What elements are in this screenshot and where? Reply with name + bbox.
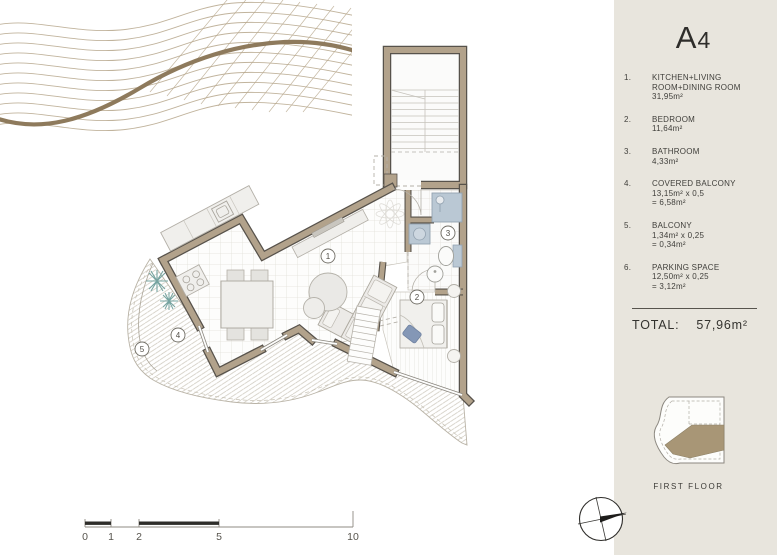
sofa	[318, 263, 397, 349]
dining-table	[221, 270, 273, 340]
room-label-balcony: 5	[140, 345, 145, 354]
washbasin	[427, 266, 443, 282]
room-label-bathroom: 3	[446, 229, 451, 238]
bedroom-sliding-door	[379, 315, 406, 326]
dining-chair	[227, 270, 244, 282]
legend-text: KITCHEN+LIVING ROOM+DINING ROOM 31,95m²	[652, 73, 777, 102]
tv-console	[291, 207, 369, 258]
legend-number: 6.	[624, 263, 652, 292]
balcony-divider-line	[139, 263, 157, 371]
entry-door-swing	[393, 189, 421, 215]
bathroom-fixtures	[409, 193, 462, 282]
scale-tick-0: 0	[82, 531, 88, 543]
bed	[400, 300, 447, 348]
pillow	[432, 325, 444, 344]
toilet-tank	[453, 245, 462, 267]
interior-stairs	[347, 306, 380, 365]
nightstand	[448, 350, 461, 363]
legend-number: 4.	[624, 179, 652, 208]
side-table	[304, 298, 325, 319]
plant-icon	[160, 292, 178, 310]
unit-number: 4	[697, 27, 711, 53]
shower	[432, 193, 462, 222]
dining-chair	[227, 328, 244, 340]
bathroom-floor	[408, 190, 463, 290]
legend-item-kitchen: 1. KITCHEN+LIVING ROOM+DINING ROOM 31,95…	[624, 73, 777, 102]
living-room-floor	[168, 190, 407, 372]
toilet	[439, 247, 454, 266]
scale-tick-5: 5	[216, 531, 222, 543]
legend-number: 3.	[624, 147, 652, 166]
legend-text: BEDROOM 11,64m²	[652, 115, 777, 134]
legend-number: 5.	[624, 221, 652, 250]
kitchen-sink-icon	[212, 201, 234, 222]
terrace-covered-balcony	[128, 259, 467, 445]
room-legend: 1. KITCHEN+LIVING ROOM+DINING ROOM 31,95…	[624, 73, 777, 292]
legend-text: PARKING SPACE 12,50m² x 0,25 = 3,12m²	[652, 263, 777, 292]
legend-number: 2.	[624, 115, 652, 134]
tv-icon	[312, 217, 344, 237]
total-divider	[632, 308, 757, 309]
keyplan-caption: FIRST FLOOR	[624, 482, 753, 491]
wall-stub	[384, 174, 397, 187]
interior-walls	[376, 190, 463, 331]
terrace-edge-dashed	[132, 263, 464, 440]
keyplan: FIRST FLOOR	[624, 392, 753, 491]
room-label-bedroom: 2	[415, 293, 420, 302]
legend-item-covered-balcony: 4. COVERED BALCONY 13,15m² x 0,5 = 6,58m…	[624, 179, 777, 208]
room-label-living: 1	[326, 252, 331, 261]
total-row: TOTAL: 57,96m²	[632, 318, 777, 332]
washing-machine	[409, 224, 430, 244]
legend-number: 1.	[624, 73, 652, 102]
pillow	[432, 303, 444, 322]
dining-chair	[251, 270, 268, 282]
unit-letter: A	[676, 20, 698, 55]
stairwell	[374, 50, 463, 190]
legend-text: BATHROOM 4,33m²	[652, 147, 777, 166]
room-number-labels: 1 2 3 4 5	[135, 226, 455, 356]
total-value: 57,96m²	[696, 318, 747, 332]
dining-chair	[251, 328, 268, 340]
stove-icon	[176, 265, 209, 297]
legend-item-parking: 6. PARKING SPACE 12,50m² x 0,25 = 3,12m²	[624, 263, 777, 292]
scale-tick-2: 2	[136, 531, 142, 543]
contour-lines-decoration	[0, 0, 385, 131]
thick-contour-line	[0, 42, 358, 125]
legend-item-bathroom: 3. BATHROOM 4,33m²	[624, 147, 777, 166]
window-walls	[199, 326, 462, 395]
kitchen-counter	[161, 186, 259, 297]
legend-text: COVERED BALCONY 13,15m² x 0,5 = 6,58m²	[652, 179, 777, 208]
doors	[379, 189, 435, 326]
plant-icon	[146, 270, 168, 292]
total-label: TOTAL:	[632, 318, 679, 332]
accent-pillow	[402, 324, 422, 343]
ceiling-fan-decor	[376, 200, 404, 228]
bedroom-floor	[383, 292, 463, 394]
scale-bar: 0 1 2 5 10	[82, 511, 359, 543]
bathroom-door-swing	[412, 269, 435, 292]
legend-item-balcony: 5. BALCONY 1,34m² x 0,25 = 0,34m²	[624, 221, 777, 250]
coffee-table	[309, 273, 347, 311]
room-label-covered-balcony: 4	[176, 331, 181, 340]
stair-treads	[391, 90, 459, 152]
shaft-dashed-outline	[374, 156, 387, 185]
scale-tick-1: 1	[108, 531, 114, 543]
nightstand	[448, 285, 461, 298]
exterior-walls	[163, 188, 469, 401]
scale-tick-10: 10	[347, 531, 359, 543]
unit-title: A4	[624, 20, 763, 56]
legend-item-bedroom: 2. BEDROOM 11,64m²	[624, 115, 777, 134]
info-panel: A4 1. KITCHEN+LIVING ROOM+DINING ROOM 31…	[614, 0, 777, 555]
shower-head-icon	[436, 196, 444, 204]
keyplan-drawing	[643, 392, 735, 474]
legend-text: BALCONY 1,34m² x 0,25 = 0,34m²	[652, 221, 777, 250]
